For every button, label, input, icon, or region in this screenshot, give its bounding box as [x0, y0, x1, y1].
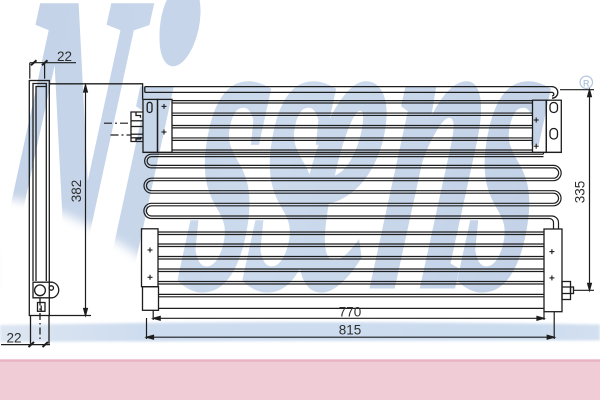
svg-text:815: 815 [339, 323, 362, 338]
svg-text:382: 382 [69, 180, 84, 203]
svg-text:22: 22 [7, 331, 22, 346]
svg-text:335: 335 [573, 181, 588, 204]
svg-text:R: R [583, 78, 590, 88]
svg-text:22: 22 [57, 49, 72, 64]
svg-text:770: 770 [339, 305, 362, 320]
